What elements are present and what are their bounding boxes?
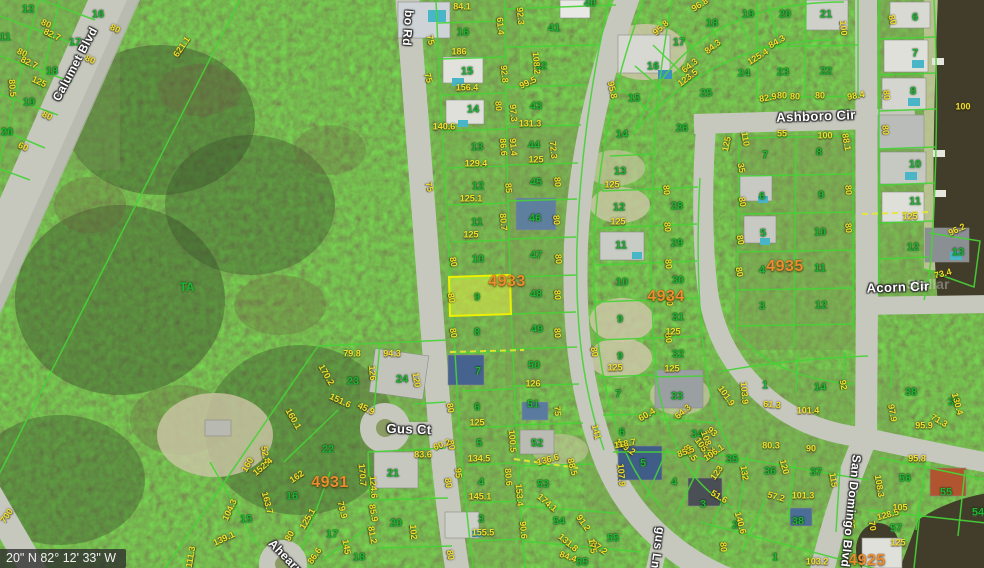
dimension-label: 115 xyxy=(827,472,838,488)
lot-number: 55 xyxy=(576,558,588,568)
dimension-label: 80 xyxy=(790,93,800,102)
lot-number: 11 xyxy=(471,218,483,229)
dimension-label: 80 xyxy=(843,223,853,234)
lot-number: 9 xyxy=(818,191,824,202)
dimension-label: 75 xyxy=(552,406,562,417)
dimension-label: 95.8 xyxy=(908,455,926,464)
street-label-gus-ln: gus Ln xyxy=(649,527,667,568)
dimension-label: 125 xyxy=(721,136,733,153)
dimension-label: 130.4 xyxy=(950,392,965,416)
dimension-label: 170.7 xyxy=(357,463,368,486)
dimension-label: 100.5 xyxy=(507,429,518,452)
lot-number: 49 xyxy=(531,325,543,336)
dimension-label: 75 xyxy=(422,72,433,84)
lot-number: 11 xyxy=(0,33,11,44)
lot-number: 37 xyxy=(810,468,822,479)
dimension-label: 90 xyxy=(806,445,816,454)
dimension-label: 97.9 xyxy=(886,404,898,423)
dimension-label: 80 xyxy=(663,259,673,270)
dimension-label: 80 xyxy=(448,256,459,267)
dimension-label: 51.6 xyxy=(709,489,729,506)
dimension-label: 82.7 xyxy=(42,27,62,43)
dimension-label: 621.1 xyxy=(172,35,192,59)
dimension-label: 80 xyxy=(552,290,562,301)
dimension-label: 101.4 xyxy=(797,407,820,416)
dimension-label: 129.4 xyxy=(465,160,488,169)
dimension-label: 80.6 xyxy=(503,468,513,486)
watermark: Stellar xyxy=(907,277,950,291)
lot-number: 12 xyxy=(907,243,919,254)
dimension-label: 101.3 xyxy=(792,492,815,501)
dimension-label: 80 xyxy=(734,266,745,277)
dimension-label: 125 xyxy=(469,419,484,428)
lot-number: 20 xyxy=(390,519,402,530)
dimension-label: 80 xyxy=(661,185,671,196)
dimension-label: 70 xyxy=(867,520,878,531)
dimension-label: 61.4 xyxy=(495,17,505,35)
lot-number: 18 xyxy=(46,67,58,78)
dimension-label: 45.9 xyxy=(356,401,376,417)
dimension-label: 84.3 xyxy=(767,34,787,51)
lot-number: 40 xyxy=(584,0,596,10)
lot-number: 35 xyxy=(726,455,738,466)
lot-number: 33 xyxy=(671,392,683,403)
lot-number: 47 xyxy=(530,251,542,262)
dimension-label: 120 xyxy=(778,459,791,476)
dimension-label: 80 xyxy=(551,215,561,226)
dimension-label: 99.5 xyxy=(518,75,538,91)
dimension-label: 84.1 xyxy=(453,3,471,12)
map-labels-layer: 1216171118192016151413121110987654340414… xyxy=(0,0,984,568)
lot-number: 18 xyxy=(706,19,718,30)
dimension-label: 80 xyxy=(445,549,456,560)
lot-number: 6 xyxy=(759,192,765,203)
dimension-label: 80 xyxy=(445,402,456,413)
dimension-label: 80 xyxy=(886,14,897,26)
dimension-label: 103.2 xyxy=(806,558,829,567)
dimension-label: 81.2 xyxy=(366,526,378,545)
lot-number: 3 xyxy=(700,500,706,511)
lot-number: 3 xyxy=(759,302,765,313)
lot-number: 51 xyxy=(527,400,539,411)
street-label-bo-rd: bo Rd xyxy=(401,10,415,47)
dimension-label: 92 xyxy=(838,379,849,390)
dimension-label: 162 xyxy=(288,469,305,485)
dimension-label: 128.5 xyxy=(876,508,900,523)
lot-number: 9 xyxy=(617,352,623,363)
lot-number: 28 xyxy=(671,202,683,213)
dimension-label: 125.4 xyxy=(746,47,770,67)
lot-number: 3 xyxy=(478,515,484,526)
dimension-label: 160.1 xyxy=(283,407,302,431)
lot-number: 21 xyxy=(820,10,832,21)
dimension-label: 145.1 xyxy=(469,493,492,502)
dimension-label: 95 xyxy=(453,468,463,479)
lot-number: 16 xyxy=(647,62,659,73)
dimension-label: 100 xyxy=(817,132,832,141)
dimension-label: 82.7 xyxy=(19,55,39,71)
lot-number: 23 xyxy=(347,377,359,388)
dimension-label: 95.8 xyxy=(651,19,670,37)
dimension-label: 94.3 xyxy=(383,350,401,359)
lot-number: 10 xyxy=(909,160,921,171)
lot-number: 12 xyxy=(22,5,34,16)
dimension-label: 72.3 xyxy=(548,141,558,159)
lot-number: 10 xyxy=(472,255,484,266)
dimension-label: 100 xyxy=(955,103,970,112)
lot-number: 45 xyxy=(530,178,542,189)
dimension-label: 104.3 xyxy=(221,498,239,522)
dimension-label: 141 xyxy=(590,424,603,441)
dimension-label: 80 xyxy=(662,222,672,233)
lot-number: 23 xyxy=(777,68,789,79)
dimension-label: 80 xyxy=(589,346,600,357)
dimension-label: 85 xyxy=(503,183,513,194)
street-label-ashboro-cir: Ashboro Cir xyxy=(776,108,856,124)
lot-number: 46 xyxy=(529,214,541,225)
dimension-label: 79.8 xyxy=(343,350,361,359)
block-number: 4933 xyxy=(488,274,526,290)
lot-number: 55 xyxy=(940,488,952,499)
lot-number: 10 xyxy=(814,228,826,239)
lot-number: 8 xyxy=(474,328,480,339)
dimension-label: 125 xyxy=(665,328,680,337)
lot-number: 4 xyxy=(671,478,677,489)
lot-number: 14 xyxy=(814,383,826,394)
lot-number: 29 xyxy=(671,239,683,250)
lot-number: 14 xyxy=(467,105,479,116)
lot-number: 8 xyxy=(910,87,916,98)
dimension-label: 80 xyxy=(735,234,746,245)
dimension-label: 80 xyxy=(718,542,728,553)
dimension-label: 151.6 xyxy=(328,392,352,410)
block-number: 4925 xyxy=(848,553,886,568)
dimension-label: 80 xyxy=(843,185,853,196)
dimension-label: 126 xyxy=(525,380,540,389)
dimension-label: 186 xyxy=(451,48,466,57)
dimension-label: 80 xyxy=(446,292,457,303)
block-number: 4934 xyxy=(647,289,685,305)
dimension-label: 97.3 xyxy=(508,104,518,122)
dimension-label: 80 xyxy=(737,196,748,207)
dimension-label: 125 xyxy=(463,231,478,240)
dimension-label: 123.5 xyxy=(676,68,699,89)
lot-number: 13 xyxy=(471,143,483,154)
lot-number: 16 xyxy=(286,492,298,503)
dimension-label: 82.9 xyxy=(759,92,778,104)
lot-number: 32 xyxy=(672,350,684,361)
dimension-label: 125 xyxy=(528,156,543,165)
dimension-label: 60 xyxy=(17,141,30,153)
lot-number: 17 xyxy=(326,530,338,541)
dimension-label: 91.2 xyxy=(574,513,591,533)
street-label-san-domingo-blvd: San Domingo Blvd xyxy=(839,454,863,568)
lot-number: 31 xyxy=(672,313,684,324)
dimension-label: 79.9 xyxy=(335,500,348,519)
lot-number: 8 xyxy=(816,148,822,159)
dimension-label: 80.3 xyxy=(762,442,780,451)
dimension-label: 125.1 xyxy=(298,507,317,531)
lot-number: 12 xyxy=(472,182,484,193)
coordinates-text: 20" N 82° 12' 33" W xyxy=(6,551,116,565)
dimension-label: 131.3 xyxy=(519,120,542,129)
dimension-label: 57.2 xyxy=(766,490,785,503)
dimension-label: 175 xyxy=(586,538,597,554)
dimension-label: 60.4 xyxy=(637,407,657,424)
lot-number: 12 xyxy=(815,301,827,312)
lot-number: 54 xyxy=(972,508,984,519)
dimension-label: 80 xyxy=(284,529,297,542)
dimension-label: 80 xyxy=(443,477,454,488)
dimension-label: 96.2 xyxy=(947,222,967,238)
dimension-label: 108.2 xyxy=(531,51,542,74)
street-label-ahearn: Ahearn xyxy=(266,537,305,568)
lot-number: 13 xyxy=(614,167,626,178)
lot-number: 17 xyxy=(673,38,685,49)
dimension-label: 103.9 xyxy=(739,381,750,404)
lot-number: 18 xyxy=(353,553,365,564)
lot-number: 20 xyxy=(779,10,791,21)
lot-number: 19 xyxy=(23,98,35,109)
lot-number: 12 xyxy=(613,203,625,214)
dimension-label: 80 xyxy=(881,90,891,101)
dimension-label: 136.6 xyxy=(536,453,560,468)
dimension-label: 120 xyxy=(410,372,421,388)
dimension-label: 92.3 xyxy=(515,7,525,25)
lot-number: 41 xyxy=(548,24,560,35)
lot-number: 44 xyxy=(528,141,540,152)
dimension-label: 125 xyxy=(607,364,622,373)
dimension-label: 75 xyxy=(423,181,434,193)
dimension-label: 80.7 xyxy=(498,213,508,231)
dimension-label: 125.1 xyxy=(460,195,483,204)
lot-number: 43 xyxy=(530,102,542,113)
dimension-label: 700 xyxy=(0,507,15,524)
dimension-label: 125 xyxy=(902,213,917,222)
dimension-label: 91.4 xyxy=(508,138,518,156)
dimension-label: 163.7 xyxy=(260,491,275,515)
lot-number: 5 xyxy=(476,439,482,450)
dimension-label: 83.6 xyxy=(414,451,432,460)
lot-number: 4 xyxy=(478,478,484,489)
dimension-label: 110 xyxy=(739,131,750,147)
lot-number: 16 xyxy=(92,10,104,21)
dimension-label: 88.1 xyxy=(840,133,852,152)
dimension-label: 108.3 xyxy=(873,474,886,498)
lot-number: 7 xyxy=(475,367,481,378)
lot-number: 26 xyxy=(676,124,688,135)
block-number: 4935 xyxy=(766,259,804,275)
lot-number: 7 xyxy=(762,151,768,162)
dimension-label: 96.8 xyxy=(690,0,710,13)
lot-number: 22 xyxy=(820,67,832,78)
lot-number: 56 xyxy=(899,474,911,485)
lot-number: 20 xyxy=(1,128,13,139)
lot-number: 1 xyxy=(762,381,768,392)
lot-number: 10 xyxy=(616,278,628,289)
dimension-label: 64.3 xyxy=(673,403,692,421)
dimension-label: 80 xyxy=(493,101,503,112)
lot-number: 15 xyxy=(628,94,640,105)
lot-number: 1 xyxy=(772,553,778,564)
lot-number: 57 xyxy=(890,524,902,535)
dimension-label: 75 xyxy=(424,34,435,46)
dimension-label: 145 xyxy=(340,539,351,555)
dimension-label: 155.5 xyxy=(472,529,495,538)
lot-number: 50 xyxy=(528,361,540,372)
lot-number: 38 xyxy=(905,388,917,399)
dimension-label: 92.8 xyxy=(499,65,509,83)
lot-number: 5 xyxy=(760,229,766,240)
lot-number: 48 xyxy=(530,290,542,301)
lot-number: 19 xyxy=(742,10,754,21)
dimension-label: 153.4 xyxy=(514,483,525,506)
dimension-label: 80 xyxy=(553,254,563,265)
dimension-label: 80 xyxy=(552,328,562,339)
lot-number: 15 xyxy=(240,515,252,526)
coordinate-readout: 20" N 82° 12' 33" W xyxy=(0,549,126,568)
dimension-label: 80 xyxy=(880,125,890,136)
lot-number: 13 xyxy=(952,248,964,259)
dimension-label: 86.6 xyxy=(306,546,323,566)
dimension-label: 95.8 xyxy=(606,80,618,99)
dimension-label: 125 xyxy=(604,181,619,190)
street-label-gus-ct: Gus Ct xyxy=(386,422,431,437)
dimension-label: 95.9 xyxy=(915,422,933,431)
lot-number: 24 xyxy=(396,375,408,386)
dimension-label: 80 xyxy=(552,177,562,188)
lot-number: 55 xyxy=(607,534,619,545)
dimension-label: 134.5 xyxy=(468,455,491,464)
lot-number: 16 xyxy=(457,28,469,39)
dimension-label: 102 xyxy=(408,524,418,540)
dimension-label: 101.9 xyxy=(716,384,736,408)
lot-number: 36 xyxy=(764,467,776,478)
dimension-label: 140.6 xyxy=(433,123,456,132)
dimension-label: 80.5 xyxy=(7,79,17,97)
dimension-label: 80 xyxy=(815,92,825,101)
lot-number: 14 xyxy=(616,130,628,141)
dimension-label: 132 xyxy=(738,465,749,481)
dimension-label: 107.9 xyxy=(616,463,627,486)
dimension-label: 174.1 xyxy=(535,492,558,513)
dimension-label: 123 xyxy=(709,464,725,481)
lot-number: 4 xyxy=(759,266,765,277)
dimension-label: 170.2 xyxy=(316,363,335,387)
lot-number: 7 xyxy=(615,390,621,401)
lot-number: 11 xyxy=(615,241,627,252)
dimension-label: 139.1 xyxy=(212,530,236,548)
dimension-label: 80 xyxy=(448,327,459,338)
dimension-label: 124.6 xyxy=(368,475,379,498)
aerial-parcel-map[interactable]: 1216171118192016151413121110987654340414… xyxy=(0,0,984,568)
lot-number: 11 xyxy=(814,264,826,275)
lot-number: 52 xyxy=(531,439,543,450)
lot-number: 30 xyxy=(672,276,684,287)
lot-number: 7 xyxy=(912,49,918,60)
lot-number: 9 xyxy=(474,293,480,304)
dimension-label: 90.6 xyxy=(518,521,528,539)
lot-number: 25 xyxy=(700,89,712,100)
block-number: 4931 xyxy=(311,475,349,491)
lot-number: 53 xyxy=(537,480,549,491)
lot-number: 9 xyxy=(617,315,623,326)
dimension-label: 126 xyxy=(367,365,377,381)
dimension-label: 85.9 xyxy=(367,504,379,523)
dimension-label: 100 xyxy=(838,20,848,36)
lot-number: 6 xyxy=(474,403,480,414)
dimension-label: 80 xyxy=(777,92,787,101)
tract-label: TA xyxy=(179,281,194,293)
dimension-label: 111.3 xyxy=(185,546,198,568)
dimension-label: 61.3 xyxy=(763,400,781,410)
dimension-label: 35 xyxy=(736,162,747,173)
dimension-label: 86.6 xyxy=(498,138,508,156)
lot-number: 15 xyxy=(461,67,473,78)
lot-number: 11 xyxy=(909,197,921,208)
dimension-label: 80 xyxy=(109,23,122,35)
dimension-label: 156.4 xyxy=(456,84,479,93)
lot-number: 5 xyxy=(640,459,646,470)
lot-number: 21 xyxy=(387,469,399,480)
dimension-label: 125 xyxy=(664,365,679,374)
lot-number: 22 xyxy=(322,445,334,456)
lot-number: 38 xyxy=(792,517,804,528)
lot-number: 24 xyxy=(738,69,750,80)
dimension-label: 84.3 xyxy=(703,38,722,56)
lot-number: 6 xyxy=(912,13,918,24)
dimension-label: 98.4 xyxy=(847,90,866,102)
dimension-label: 88.5 xyxy=(565,457,578,476)
dimension-label: 55 xyxy=(777,130,787,139)
dimension-label: 125 xyxy=(890,539,905,548)
dimension-label: 125 xyxy=(610,218,625,227)
dimension-label: 80 xyxy=(41,110,54,122)
lot-number: 54 xyxy=(553,517,565,528)
